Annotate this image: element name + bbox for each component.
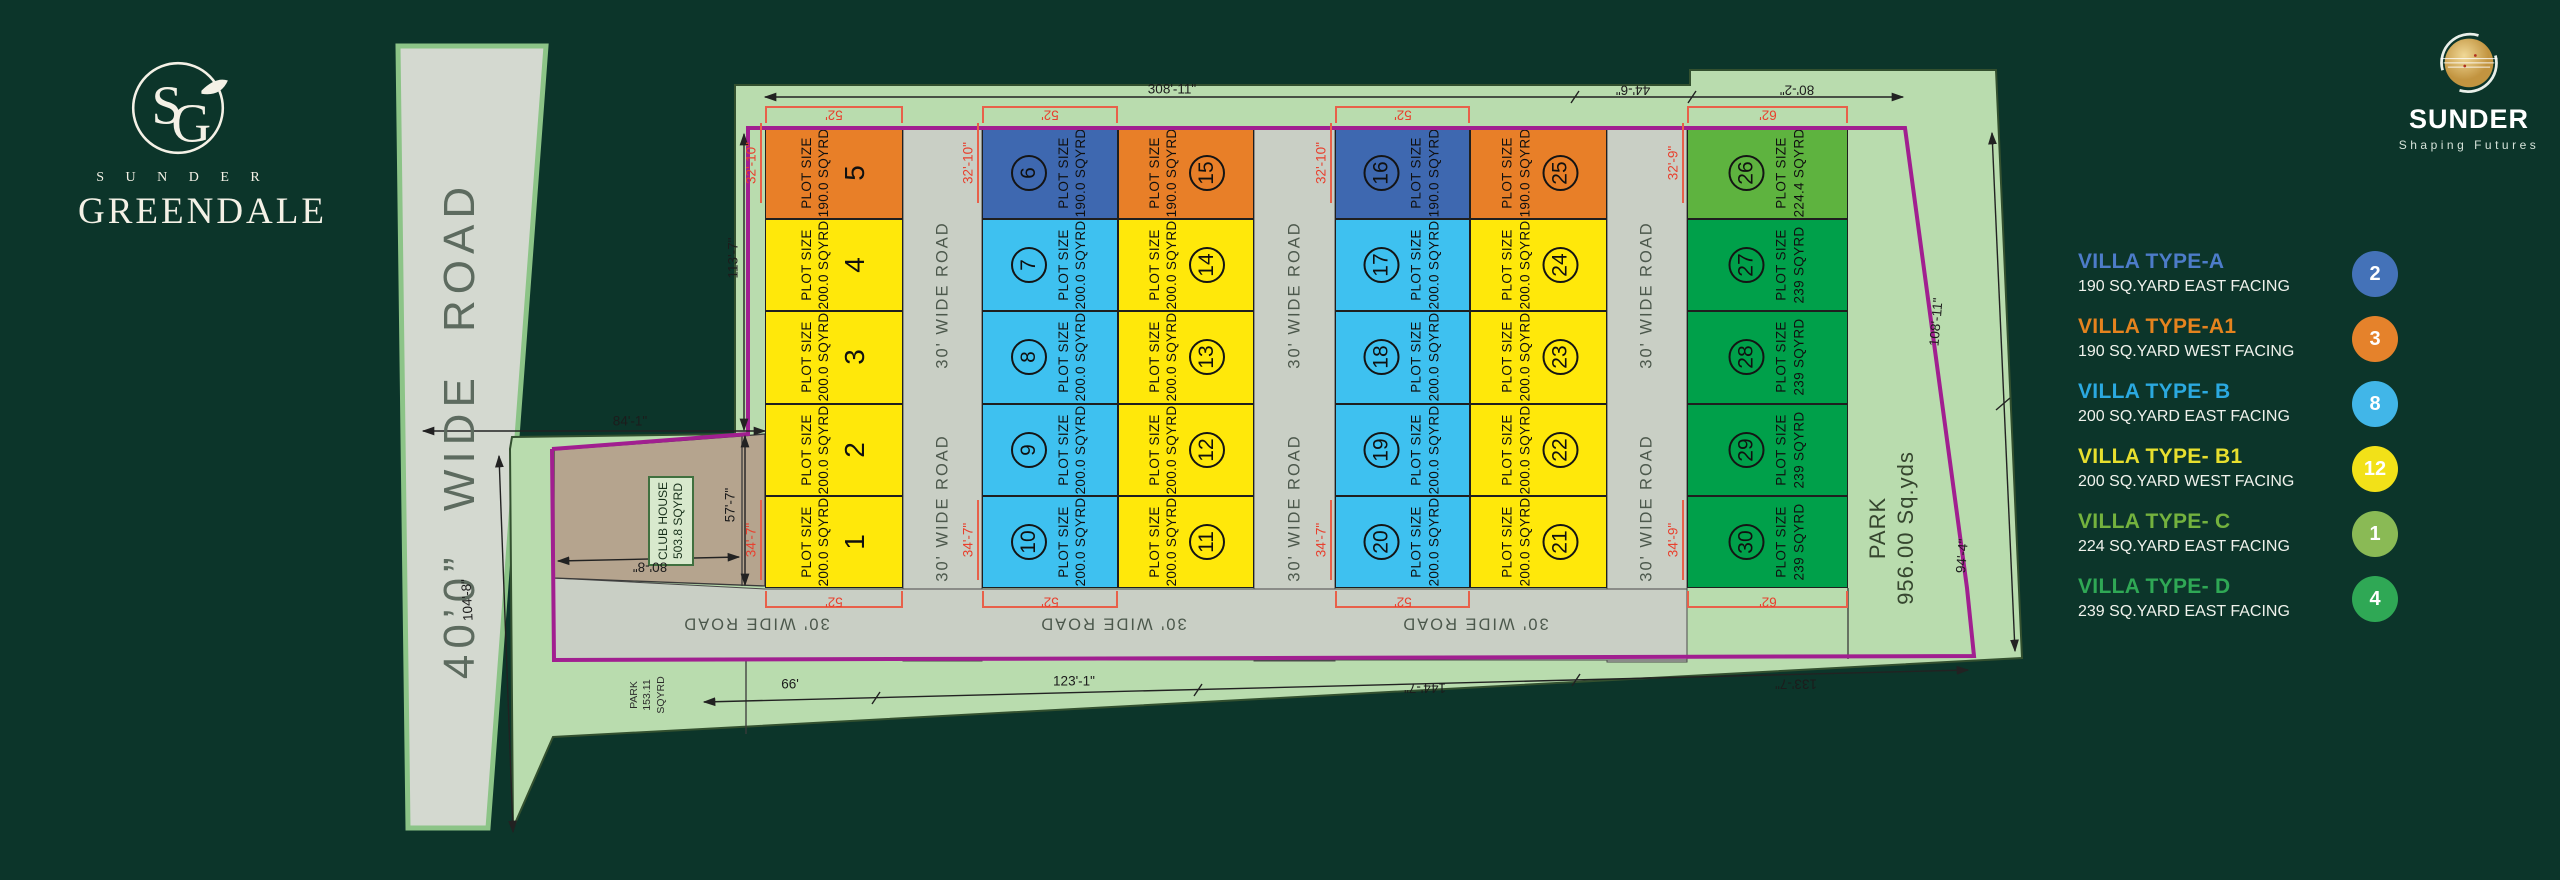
dimension-label-16: 32'-10" [1314, 142, 1329, 184]
plot-number: 4 [841, 258, 869, 274]
dimension-label-11: 133'-7" [1775, 677, 1817, 692]
plot-cell-19: 19PLOT SIZE200.0 SQYRD [1335, 404, 1470, 496]
sg-monogram-icon: S G [122, 52, 234, 164]
plot-number: 26 [1728, 155, 1764, 191]
road-label-vertical-3-1: 30' WIDE ROAD [1638, 434, 1657, 581]
plot-content: PLOT SIZE200.0 SQYRD21 [1473, 496, 1604, 588]
plot-number: 30 [1728, 524, 1764, 560]
count-badge: 4 [2352, 576, 2398, 622]
width-bracket-top-1 [765, 106, 903, 123]
left-road-label: 40’0” WIDE ROAD [330, 300, 590, 560]
plot-cell-16: 16PLOT SIZE190.0 SQYRD [1335, 127, 1470, 219]
plot-size-label: PLOT SIZE224.4 SQYRD [1773, 129, 1806, 218]
plot-cell-27: 27PLOT SIZE239 SQYRD [1687, 219, 1848, 311]
plot-size-label: PLOT SIZE200.0 SQYRD [1499, 497, 1532, 586]
plot-content: 6PLOT SIZE190.0 SQYRD [985, 127, 1115, 219]
legend-item-villa-type-a1: VILLA TYPE-A1190 SQ.YARD WEST FACING3 [2078, 315, 2398, 361]
plot-content: 26PLOT SIZE224.4 SQYRD [1690, 127, 1845, 219]
width-bracket-bottom-label-1: 52' [825, 595, 843, 610]
legend-title: VILLA TYPE-A [2078, 250, 2398, 274]
site-plan-poster: PLOT SIZE190.0 SQYRD5PLOT SIZE200.0 SQYR… [0, 0, 2560, 880]
width-bracket-top-3 [1335, 106, 1470, 123]
plot-cell-11: PLOT SIZE200.0 SQYRD11 [1118, 496, 1254, 588]
dimension-mark-15 [977, 123, 979, 203]
road-label-bottom-3: 30' WIDE ROAD [1401, 614, 1548, 633]
plot-size-label: PLOT SIZE200.0 SQYRD [1408, 221, 1441, 310]
plot-number: 18 [1363, 339, 1399, 375]
club-house-area: 503.8 SQYRD [671, 483, 686, 559]
plot-number: 3 [841, 350, 869, 366]
club-house-label: CLUB HOUSE 503.8 SQYRD [648, 476, 694, 566]
plot-cell-25: PLOT SIZE190.0 SQYRD25 [1470, 127, 1607, 219]
plot-cell-2: PLOT SIZE200.0 SQYRD2 [765, 404, 903, 496]
plot-size-label: PLOT SIZE200.0 SQYRD [1147, 405, 1180, 494]
width-bracket-bottom-1 [765, 591, 903, 608]
plot-number: 19 [1363, 432, 1399, 468]
legend-description: 200 SQ.YARD EAST FACING [2078, 408, 2398, 426]
club-house-name: CLUB HOUSE [656, 482, 671, 560]
plot-content: 10PLOT SIZE200.0 SQYRD [985, 496, 1115, 588]
plot-number: 1 [841, 534, 869, 550]
park-main-area: 956.00 Sq.yds [1893, 451, 1919, 605]
width-bracket-top-4 [1687, 106, 1848, 123]
width-bracket-top-label-2: 52' [1041, 108, 1059, 123]
plot-content: PLOT SIZE200.0 SQYRD1 [768, 496, 900, 588]
plot-content: PLOT SIZE200.0 SQYRD23 [1473, 311, 1604, 403]
dimension-label-8: 66' [781, 677, 799, 692]
plot-cell-12: PLOT SIZE200.0 SQYRD12 [1118, 404, 1254, 496]
dimension-label-20: 34'-7" [1314, 523, 1329, 557]
plot-content: PLOT SIZE190.0 SQYRD25 [1473, 127, 1604, 219]
width-bracket-bottom-label-4: 62' [1759, 595, 1777, 610]
plot-number: 16 [1363, 155, 1399, 191]
plot-cell-10: 10PLOT SIZE200.0 SQYRD [982, 496, 1118, 588]
plot-number: 6 [1011, 155, 1047, 191]
park-small-name: PARK [628, 681, 642, 709]
legend-description: 224 SQ.YARD EAST FACING [2078, 538, 2398, 556]
plot-cell-13: PLOT SIZE200.0 SQYRD13 [1118, 311, 1254, 403]
plot-content: 28PLOT SIZE239 SQYRD [1690, 311, 1845, 403]
dimension-label-9: 123'-1" [1053, 674, 1095, 689]
sunder-logo: SUNDER Shaping Futures [2394, 28, 2544, 152]
plot-cell-1: PLOT SIZE200.0 SQYRD1 [765, 496, 903, 588]
plot-size-label: PLOT SIZE239 SQYRD [1773, 319, 1806, 396]
plot-cell-15: PLOT SIZE190.0 SQYRD15 [1118, 127, 1254, 219]
width-bracket-bottom-label-2: 52' [1041, 595, 1059, 610]
plot-number: 21 [1542, 524, 1578, 560]
plot-cell-26: 26PLOT SIZE224.4 SQYRD [1687, 127, 1848, 219]
plot-number: 10 [1011, 524, 1047, 560]
plot-number: 15 [1189, 155, 1225, 191]
plot-content: 16PLOT SIZE190.0 SQYRD [1338, 127, 1467, 219]
plot-size-label: PLOT SIZE200.0 SQYRD [1408, 405, 1441, 494]
road-label-bottom-1: 30' WIDE ROAD [682, 614, 829, 633]
plot-number: 25 [1542, 155, 1578, 191]
road-label-bottom-2: 30' WIDE ROAD [1039, 614, 1186, 633]
dimension-label-15: 32'-10" [961, 142, 976, 184]
plot-cell-29: 29PLOT SIZE239 SQYRD [1687, 404, 1848, 496]
road-label-vertical-1-0: 30' WIDE ROAD [933, 221, 952, 368]
brand-name: S U N D E R [78, 170, 278, 186]
legend-item-villa-type-b1: VILLA TYPE- B1200 SQ.YARD WEST FACING12 [2078, 445, 2398, 491]
villa-type-legend: VILLA TYPE-A190 SQ.YARD EAST FACING2VILL… [2078, 250, 2398, 621]
dimension-mark-21 [1682, 500, 1684, 580]
plot-number: 11 [1189, 524, 1225, 560]
plot-size-label: PLOT SIZE200.0 SQYRD [1056, 497, 1089, 586]
plot-cell-18: 18PLOT SIZE200.0 SQYRD [1335, 311, 1470, 403]
plot-size-label: PLOT SIZE200.0 SQYRD [799, 313, 832, 402]
road-bottom [553, 578, 1687, 660]
plot-size-label: PLOT SIZE190.0 SQYRD [1147, 129, 1180, 218]
plot-size-label: PLOT SIZE200.0 SQYRD [799, 221, 832, 310]
legend-description: 190 SQ.YARD EAST FACING [2078, 278, 2398, 296]
plot-content: 18PLOT SIZE200.0 SQYRD [1338, 311, 1467, 403]
plot-number: 23 [1542, 339, 1578, 375]
plot-size-label: PLOT SIZE200.0 SQYRD [1408, 497, 1441, 586]
plot-size-label: PLOT SIZE190.0 SQYRD [1499, 129, 1532, 218]
plot-size-label: PLOT SIZE200.0 SQYRD [1147, 221, 1180, 310]
legend-title: VILLA TYPE- C [2078, 510, 2398, 534]
plot-content: PLOT SIZE200.0 SQYRD2 [768, 404, 900, 496]
plot-number: 7 [1011, 247, 1047, 283]
dimension-label-7: 80'-8" [633, 560, 667, 575]
width-bracket-bottom-label-3: 52' [1394, 595, 1412, 610]
dimension-label-3: 113'-7" [726, 238, 741, 279]
plot-content: 17PLOT SIZE200.0 SQYRD [1338, 219, 1467, 311]
road-label-vertical-3-0: 30' WIDE ROAD [1638, 221, 1657, 368]
plot-content: 27PLOT SIZE239 SQYRD [1690, 219, 1845, 311]
legend-title: VILLA TYPE-A1 [2078, 315, 2398, 339]
width-bracket-top-2 [982, 106, 1118, 123]
project-title: GREENDALE [78, 190, 278, 233]
road-vertical-3 [1607, 128, 1687, 662]
plot-number: 2 [841, 442, 869, 458]
plot-cell-22: PLOT SIZE200.0 SQYRD22 [1470, 404, 1607, 496]
legend-title: VILLA TYPE- D [2078, 575, 2398, 599]
width-bracket-top-label-1: 52' [825, 108, 843, 123]
dimension-label-21: 34'-9" [1666, 523, 1681, 557]
plot-number: 20 [1363, 524, 1399, 560]
road-vertical-2 [1254, 128, 1335, 661]
plot-content: 7PLOT SIZE200.0 SQYRD [985, 219, 1115, 311]
legend-description: 200 SQ.YARD WEST FACING [2078, 473, 2398, 491]
plot-size-label: PLOT SIZE190.0 SQYRD [1056, 129, 1089, 218]
legend-item-villa-type-d: VILLA TYPE- D239 SQ.YARD EAST FACING4 [2078, 575, 2398, 621]
legend-item-villa-type-b: VILLA TYPE- B200 SQ.YARD EAST FACING8 [2078, 380, 2398, 426]
road-vertical-1 [903, 128, 982, 661]
plot-size-label: PLOT SIZE200.0 SQYRD [1499, 405, 1532, 494]
dimension-label-13: 94'-4" [1953, 538, 1971, 574]
brand-tagline: Shaping Futures [2394, 138, 2544, 152]
plot-size-label: PLOT SIZE200.0 SQYRD [799, 497, 832, 586]
park-small-label: PARK 153.11 SQYRD [603, 645, 693, 745]
dimension-label-0: 308'-11" [1148, 82, 1196, 97]
plot-cell-17: 17PLOT SIZE200.0 SQYRD [1335, 219, 1470, 311]
plot-cell-4: PLOT SIZE200.0 SQYRD4 [765, 219, 903, 311]
width-bracket-bottom-3 [1335, 591, 1470, 608]
svg-text:G: G [171, 93, 211, 154]
plot-number: 8 [1011, 339, 1047, 375]
plot-content: 29PLOT SIZE239 SQYRD [1690, 404, 1845, 496]
plot-cell-21: PLOT SIZE200.0 SQYRD21 [1470, 496, 1607, 588]
dimension-label-17: 32'-9" [1666, 146, 1681, 180]
plot-content: PLOT SIZE200.0 SQYRD14 [1121, 219, 1251, 311]
dimension-label-10: 144'-7" [1404, 681, 1446, 696]
dimension-label-6: 57'-7" [723, 488, 738, 522]
plot-content: PLOT SIZE200.0 SQYRD4 [768, 219, 900, 311]
count-badge: 3 [2352, 316, 2398, 362]
dimension-label-5: 104'-8" [458, 579, 475, 622]
road-label-vertical-2-1: 30' WIDE ROAD [1285, 434, 1304, 581]
plot-cell-30: 30PLOT SIZE239 SQYRD [1687, 496, 1848, 588]
plot-content: 19PLOT SIZE200.0 SQYRD [1338, 404, 1467, 496]
plot-size-label: PLOT SIZE200.0 SQYRD [799, 405, 832, 494]
plot-content: PLOT SIZE200.0 SQYRD11 [1121, 496, 1251, 588]
road-label-vertical-2-0: 30' WIDE ROAD [1285, 221, 1304, 368]
road-label-vertical-1-1: 30' WIDE ROAD [933, 434, 952, 581]
plot-content: PLOT SIZE190.0 SQYRD15 [1121, 127, 1251, 219]
left-road-strip [398, 46, 546, 828]
plot-cell-9: 9PLOT SIZE200.0 SQYRD [982, 404, 1118, 496]
plot-size-label: PLOT SIZE200.0 SQYRD [1056, 313, 1089, 402]
plot-cell-8: 8PLOT SIZE200.0 SQYRD [982, 311, 1118, 403]
park-main-name: PARK [1865, 497, 1891, 559]
plot-number: 14 [1189, 247, 1225, 283]
width-bracket-bottom-2 [982, 591, 1118, 608]
plot-cell-24: PLOT SIZE200.0 SQYRD24 [1470, 219, 1607, 311]
plot-number: 29 [1728, 432, 1764, 468]
plot-number: 22 [1542, 432, 1578, 468]
park-small-unit: SQYRD [655, 676, 669, 713]
plot-size-label: PLOT SIZE200.0 SQYRD [1499, 221, 1532, 310]
dimension-label-18: 34'-7" [744, 523, 759, 557]
plot-size-label: PLOT SIZE239 SQYRD [1773, 411, 1806, 488]
plot-cell-20: 20PLOT SIZE200.0 SQYRD [1335, 496, 1470, 588]
plot-content: 8PLOT SIZE200.0 SQYRD [985, 311, 1115, 403]
plot-cell-23: PLOT SIZE200.0 SQYRD23 [1470, 311, 1607, 403]
dimension-mark-20 [1330, 500, 1332, 580]
club-house-parcel [554, 434, 765, 586]
sunder-globe-icon [2432, 28, 2506, 102]
count-badge: 8 [2352, 381, 2398, 427]
legend-description: 190 SQ.YARD WEST FACING [2078, 343, 2398, 361]
plot-size-label: PLOT SIZE200.0 SQYRD [1056, 405, 1089, 494]
plot-number: 27 [1728, 247, 1764, 283]
dimension-label-1: 44'-6" [1616, 83, 1650, 98]
dimension-mark-19 [977, 500, 979, 580]
width-bracket-top-label-3: 52' [1394, 108, 1412, 123]
plot-cell-7: 7PLOT SIZE200.0 SQYRD [982, 219, 1118, 311]
dimension-mark-17 [1682, 123, 1684, 203]
plot-number: 24 [1542, 247, 1578, 283]
plot-number: 28 [1728, 339, 1764, 375]
plot-content: 30PLOT SIZE239 SQYRD [1690, 496, 1845, 588]
plot-size-label: PLOT SIZE239 SQYRD [1773, 227, 1806, 304]
width-bracket-bottom-4 [1687, 591, 1848, 608]
park-small-area: 153.11 [641, 679, 655, 710]
plot-cell-5: PLOT SIZE190.0 SQYRD5 [765, 127, 903, 219]
plot-content: PLOT SIZE200.0 SQYRD13 [1121, 311, 1251, 403]
plot-cell-14: PLOT SIZE200.0 SQYRD14 [1118, 219, 1254, 311]
greendale-logo: S G S U N D E R GREENDALE [78, 52, 278, 233]
plot-size-label: PLOT SIZE200.0 SQYRD [1499, 313, 1532, 402]
plot-cell-6: 6PLOT SIZE190.0 SQYRD [982, 127, 1118, 219]
plot-number: 5 [841, 165, 869, 181]
plot-size-label: PLOT SIZE190.0 SQYRD [1408, 129, 1441, 218]
count-badge: 2 [2352, 251, 2398, 297]
plot-content: PLOT SIZE200.0 SQYRD22 [1473, 404, 1604, 496]
dimension-label-12: 108'-11" [1926, 297, 1945, 347]
plot-size-label: PLOT SIZE200.0 SQYRD [1408, 313, 1441, 402]
plot-number: 13 [1189, 339, 1225, 375]
plot-content: 9PLOT SIZE200.0 SQYRD [985, 404, 1115, 496]
count-badge: 1 [2352, 511, 2398, 557]
dimension-mark-18 [760, 500, 762, 580]
legend-item-villa-type-a: VILLA TYPE-A190 SQ.YARD EAST FACING2 [2078, 250, 2398, 296]
dimension-mark-14 [760, 123, 762, 203]
plot-content: PLOT SIZE200.0 SQYRD24 [1473, 219, 1604, 311]
plot-number: 12 [1189, 432, 1225, 468]
legend-description: 239 SQ.YARD EAST FACING [2078, 603, 2398, 621]
plot-content: PLOT SIZE200.0 SQYRD3 [768, 311, 900, 403]
dimension-label-19: 34'-7" [961, 523, 976, 557]
plot-number: 17 [1363, 247, 1399, 283]
plot-content: PLOT SIZE190.0 SQYRD5 [768, 127, 900, 219]
plot-cell-3: PLOT SIZE200.0 SQYRD3 [765, 311, 903, 403]
dimension-mark-16 [1330, 123, 1332, 203]
legend-title: VILLA TYPE- B [2078, 380, 2398, 404]
plot-size-label: PLOT SIZE200.0 SQYRD [1147, 497, 1180, 586]
count-badge: 12 [2352, 446, 2398, 492]
site-parcel [510, 70, 2022, 828]
width-bracket-top-label-4: 62' [1759, 108, 1777, 123]
brand-name: SUNDER [2394, 104, 2544, 135]
plot-content: PLOT SIZE200.0 SQYRD12 [1121, 404, 1251, 496]
park-main-label: PARK 956.00 Sq.yds [1812, 448, 1972, 608]
dimension-label-4: 84'-1" [613, 414, 647, 429]
plot-size-label: PLOT SIZE200.0 SQYRD [1056, 221, 1089, 310]
plot-content: 20PLOT SIZE200.0 SQYRD [1338, 496, 1467, 588]
plot-number: 9 [1011, 432, 1047, 468]
plot-cell-28: 28PLOT SIZE239 SQYRD [1687, 311, 1848, 403]
dimension-label-2: 80'-2" [1780, 83, 1814, 98]
plotted-boundary [552, 128, 1974, 660]
legend-title: VILLA TYPE- B1 [2078, 445, 2398, 469]
plot-size-label: PLOT SIZE190.0 SQYRD [799, 129, 832, 218]
plot-size-label: PLOT SIZE239 SQYRD [1773, 503, 1806, 580]
dimension-label-14: 32'-10" [744, 142, 759, 184]
legend-item-villa-type-c: VILLA TYPE- C224 SQ.YARD EAST FACING1 [2078, 510, 2398, 556]
plot-size-label: PLOT SIZE200.0 SQYRD [1147, 313, 1180, 402]
